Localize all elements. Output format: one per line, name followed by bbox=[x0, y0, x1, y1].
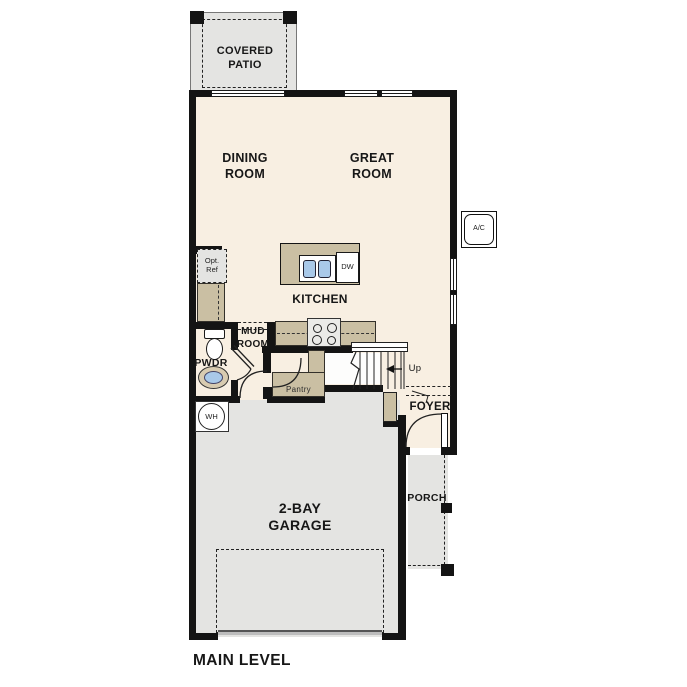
pantry-door-arc bbox=[273, 358, 301, 387]
plan-title: MAIN LEVEL bbox=[193, 650, 323, 672]
garage-label: 2-BAY GARAGE bbox=[256, 497, 344, 537]
pwdr-door-arc bbox=[237, 369, 251, 380]
kitchen-label: KITCHEN bbox=[280, 292, 360, 306]
stairs-icon bbox=[360, 352, 404, 389]
great-room-label: GREAT ROOM bbox=[332, 150, 412, 184]
up-arrow-head bbox=[386, 365, 394, 373]
pwdr-door-leaf bbox=[231, 348, 251, 369]
mud-room-label: MUD ROOM bbox=[232, 326, 274, 351]
pwdr-label: PWDR bbox=[190, 357, 232, 370]
covered-patio-label: COVERED PATIO bbox=[205, 44, 285, 74]
linework-layer bbox=[0, 0, 687, 687]
stair-break-line bbox=[351, 352, 359, 389]
floor-plan: Opt. Ref DW WH Pantry A/C bbox=[0, 0, 687, 687]
dining-room-label: DINING ROOM bbox=[205, 150, 285, 184]
up-label: Up bbox=[404, 362, 426, 375]
mudroom-garage-door-arc bbox=[240, 371, 267, 398]
front-door-arc bbox=[406, 414, 442, 447]
foyer-label: FOYER bbox=[406, 400, 454, 414]
porch-label: PORCH bbox=[406, 492, 448, 505]
